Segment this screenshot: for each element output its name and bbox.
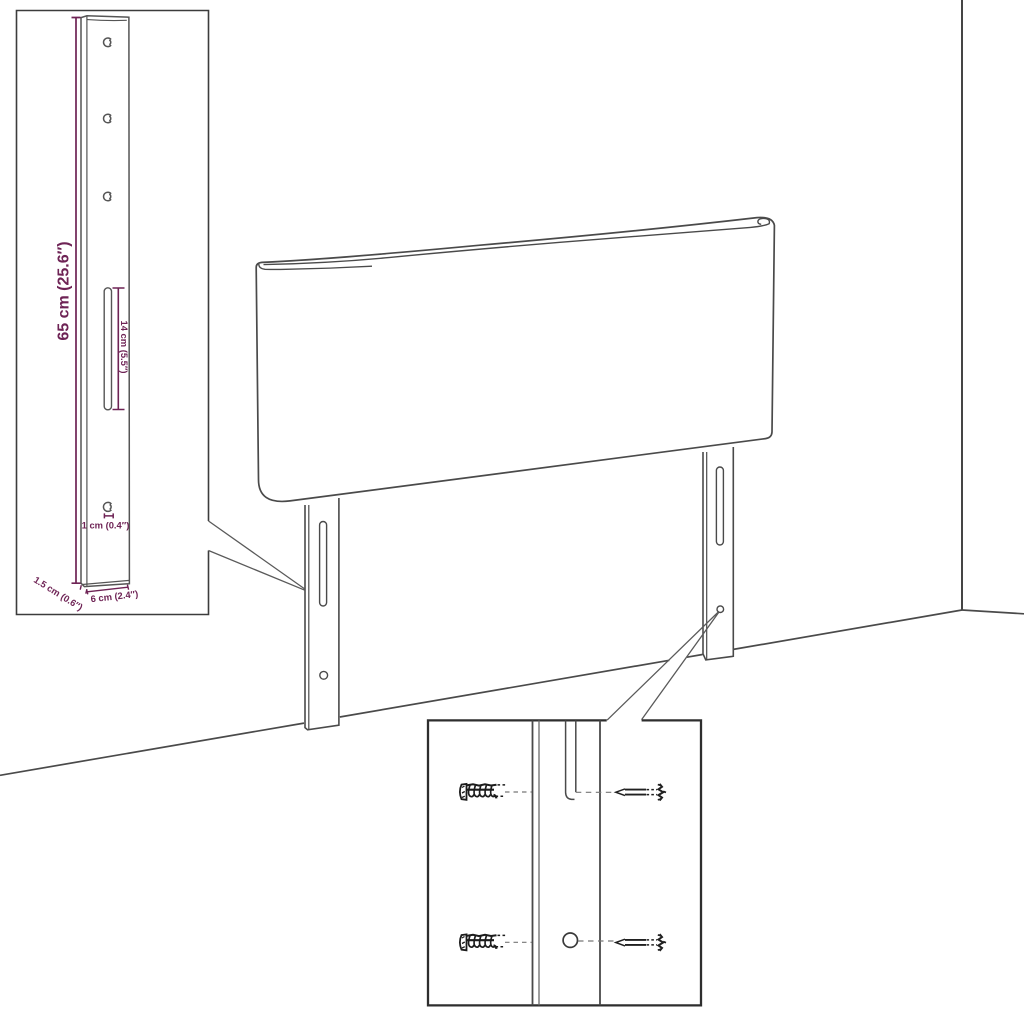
svg-text:65 cm (25.6″): 65 cm (25.6″) [56, 241, 73, 340]
svg-text:1 cm (0.4″): 1 cm (0.4″) [82, 520, 130, 531]
svg-text:14 cm (5.5″): 14 cm (5.5″) [119, 321, 130, 374]
